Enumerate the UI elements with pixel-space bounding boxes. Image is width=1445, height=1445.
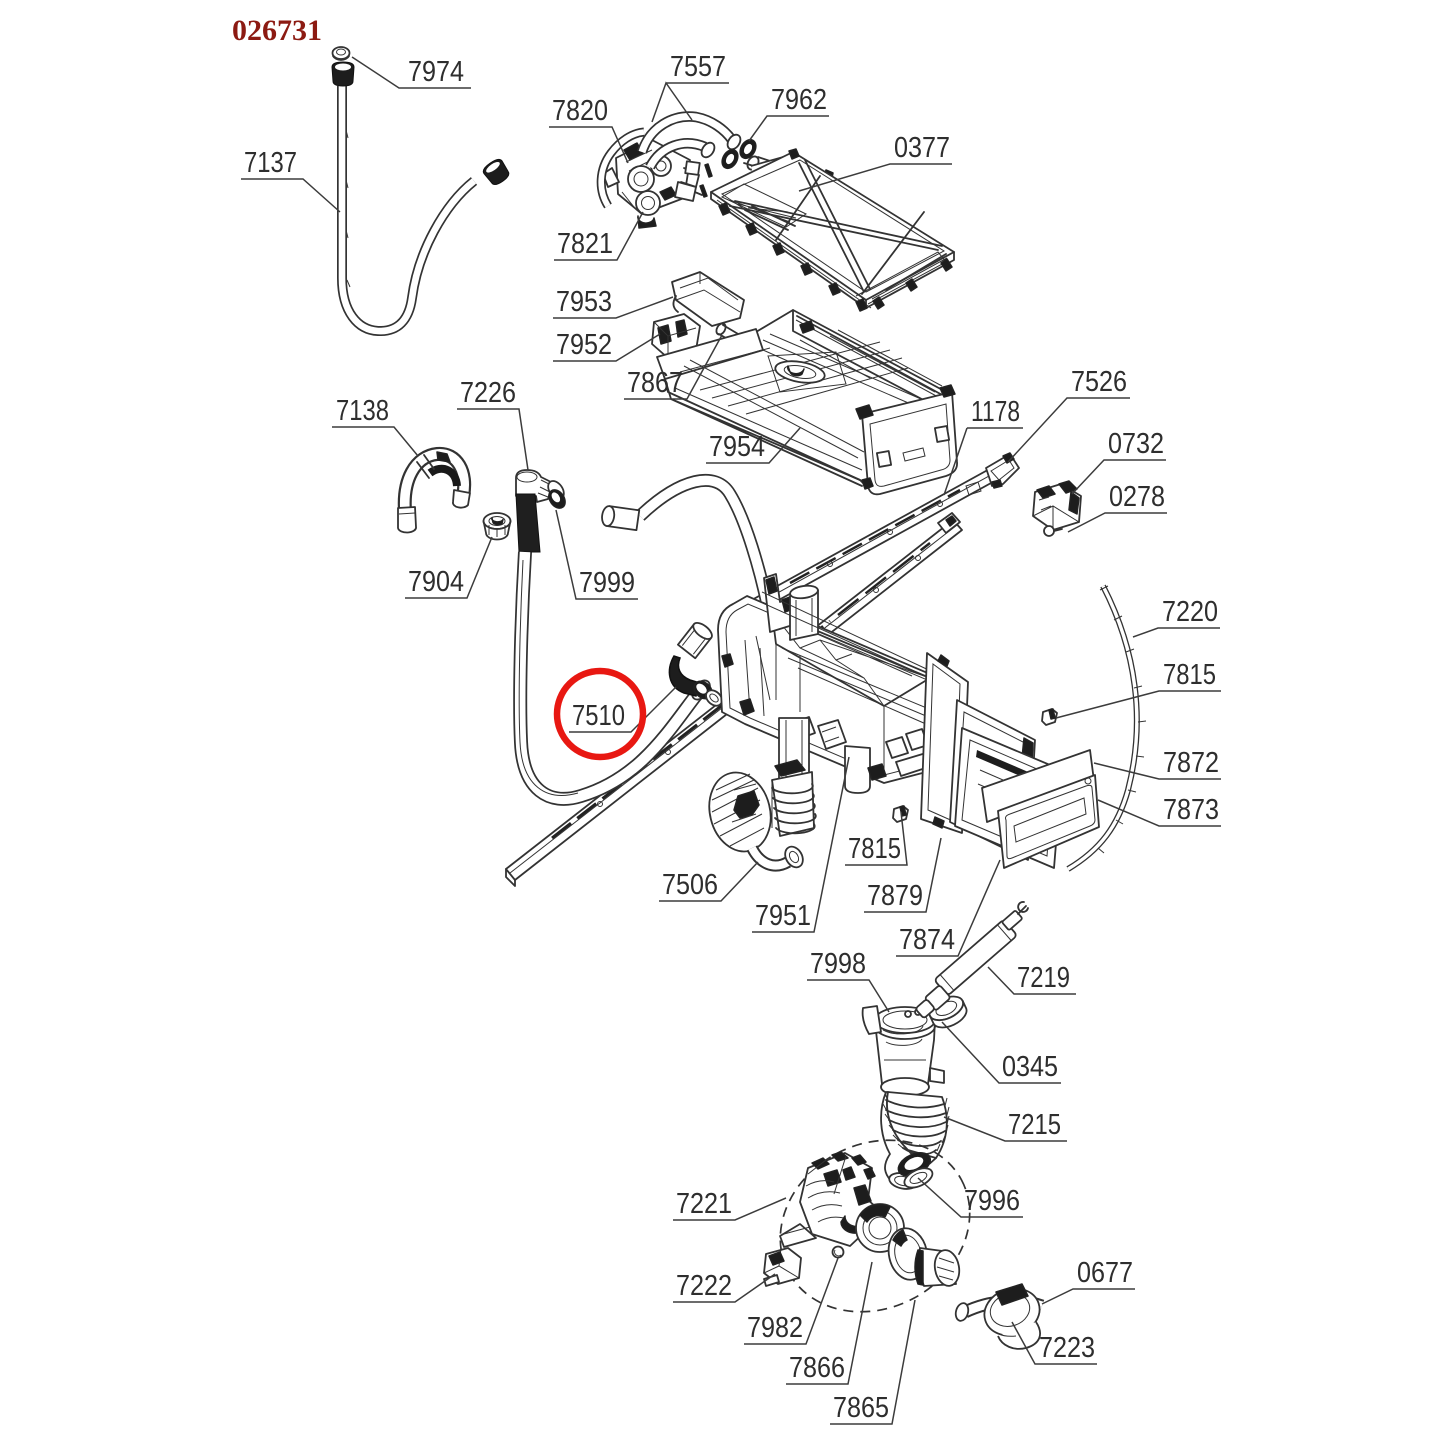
svg-text:0377: 0377 [894, 132, 950, 164]
svg-text:7226: 7226 [460, 377, 516, 409]
svg-text:0732: 0732 [1108, 428, 1164, 460]
svg-text:7999: 7999 [579, 567, 635, 599]
svg-text:7815: 7815 [848, 833, 901, 865]
svg-text:7222: 7222 [676, 1270, 732, 1302]
svg-text:7865: 7865 [833, 1392, 889, 1424]
svg-text:7962: 7962 [771, 84, 827, 116]
svg-text:7873: 7873 [1163, 794, 1219, 826]
svg-text:7215: 7215 [1008, 1109, 1061, 1141]
svg-text:7982: 7982 [747, 1312, 803, 1344]
svg-text:7953: 7953 [556, 286, 612, 318]
svg-text:7510: 7510 [572, 700, 625, 732]
svg-text:7815: 7815 [1163, 659, 1216, 691]
svg-text:0278: 0278 [1109, 481, 1165, 513]
svg-text:7557: 7557 [670, 51, 726, 83]
svg-text:7998: 7998 [810, 948, 866, 980]
svg-text:7138: 7138 [336, 395, 389, 427]
svg-text:7872: 7872 [1163, 747, 1219, 779]
svg-text:7221: 7221 [676, 1188, 732, 1220]
svg-text:7951: 7951 [755, 900, 811, 932]
svg-text:7867: 7867 [627, 367, 683, 399]
svg-text:7526: 7526 [1071, 366, 1127, 398]
svg-text:1178: 1178 [971, 396, 1020, 428]
svg-text:7866: 7866 [789, 1352, 845, 1384]
svg-text:7820: 7820 [552, 95, 608, 127]
svg-text:7137: 7137 [244, 147, 297, 179]
svg-text:7952: 7952 [556, 329, 612, 361]
svg-text:7821: 7821 [557, 228, 613, 260]
svg-text:0677: 0677 [1077, 1257, 1133, 1289]
svg-text:7506: 7506 [662, 869, 718, 901]
svg-text:7879: 7879 [867, 880, 923, 912]
svg-text:7219: 7219 [1017, 962, 1070, 994]
svg-text:7874: 7874 [899, 924, 955, 956]
svg-text:026731: 026731 [232, 14, 322, 47]
svg-text:7904: 7904 [408, 566, 464, 598]
svg-text:7223: 7223 [1039, 1332, 1095, 1364]
svg-text:7996: 7996 [964, 1185, 1020, 1217]
svg-text:7974: 7974 [408, 56, 464, 88]
svg-text:7954: 7954 [709, 431, 765, 463]
svg-text:7220: 7220 [1162, 596, 1218, 628]
svg-text:0345: 0345 [1002, 1051, 1058, 1083]
